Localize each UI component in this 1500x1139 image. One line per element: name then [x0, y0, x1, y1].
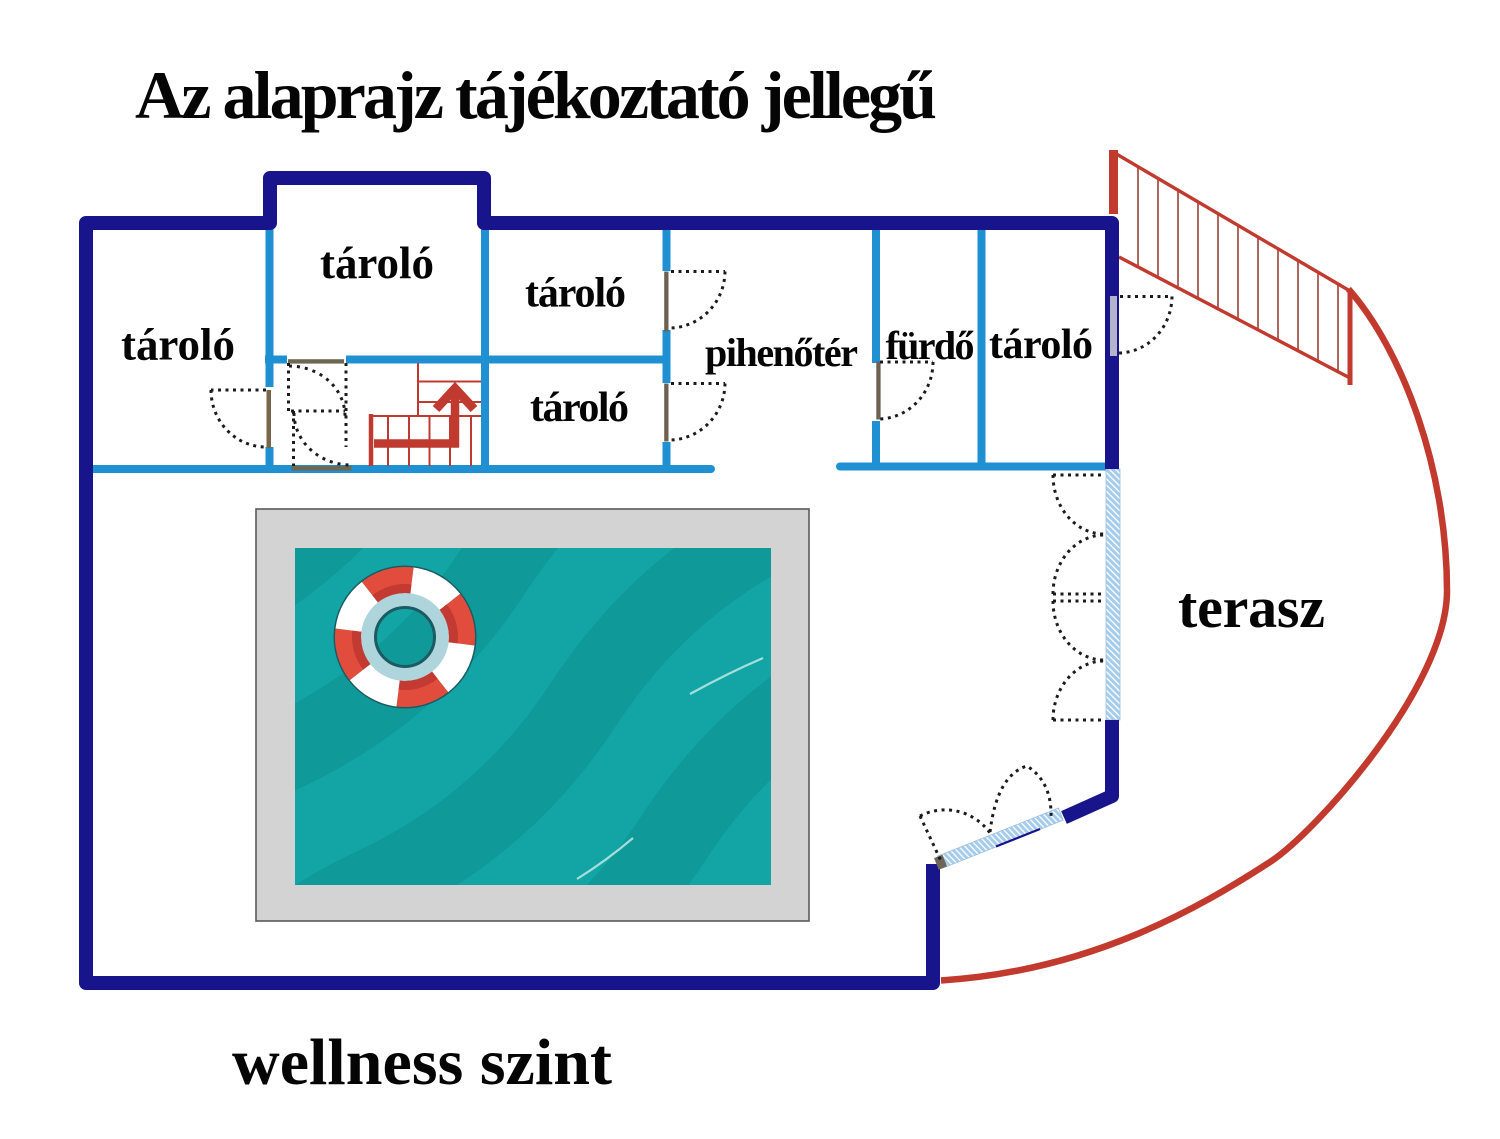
svg-text:tároló: tároló	[989, 322, 1093, 368]
svg-text:pihenőtér: pihenőtér	[705, 330, 858, 375]
svg-text:terasz: terasz	[1178, 575, 1325, 640]
svg-text:tároló: tároló	[525, 271, 626, 317]
svg-text:fürdő: fürdő	[886, 323, 975, 368]
svg-text:tároló: tároló	[320, 238, 434, 288]
svg-text:Az alaprajz tájékoztató jelleg: Az alaprajz tájékoztató jellegű	[135, 57, 937, 133]
svg-text:tároló: tároló	[121, 320, 235, 370]
svg-text:tároló: tároló	[530, 385, 629, 431]
svg-text:wellness szint: wellness szint	[232, 1026, 612, 1099]
